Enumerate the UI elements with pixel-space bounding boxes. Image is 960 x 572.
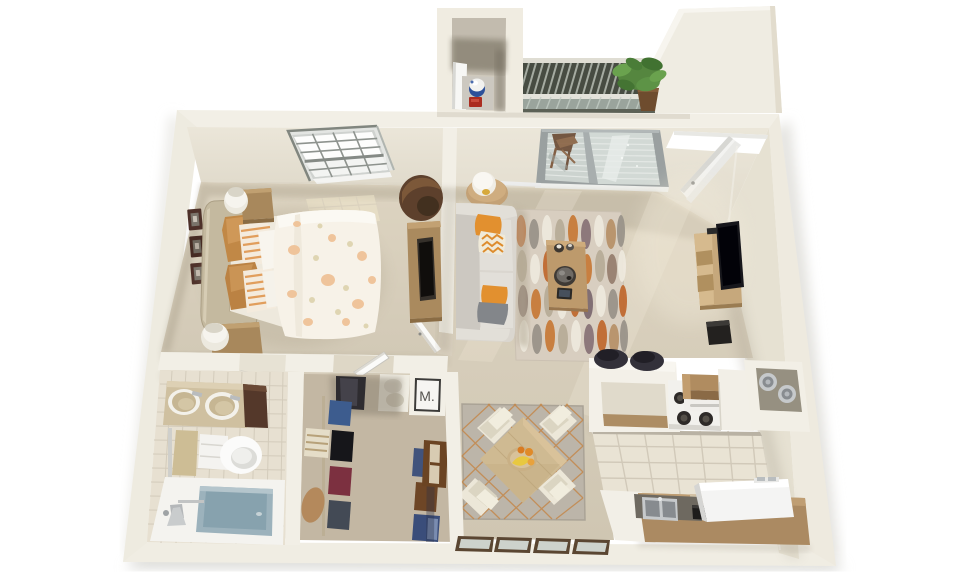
svg-text:M.: M. [419, 388, 435, 404]
